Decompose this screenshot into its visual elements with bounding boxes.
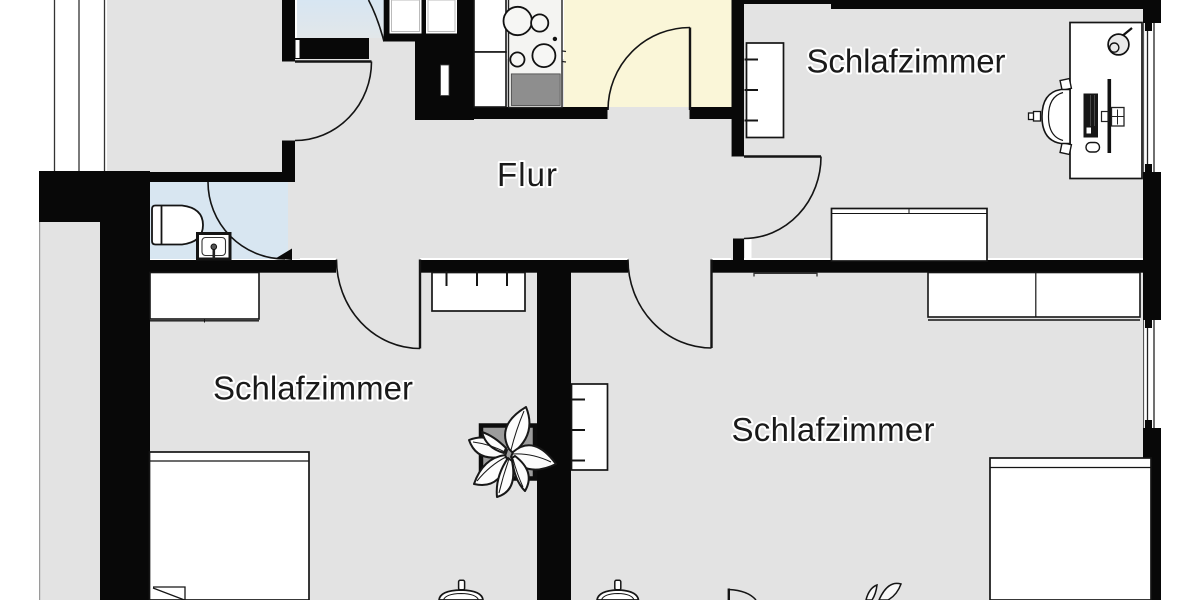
svg-text:Flur: Flur xyxy=(497,156,557,193)
svg-text:Schlafzimmer: Schlafzimmer xyxy=(732,411,935,448)
svg-text:Schlafzimmer: Schlafzimmer xyxy=(213,370,413,407)
svg-text:Schlafzimmer: Schlafzimmer xyxy=(807,43,1006,80)
